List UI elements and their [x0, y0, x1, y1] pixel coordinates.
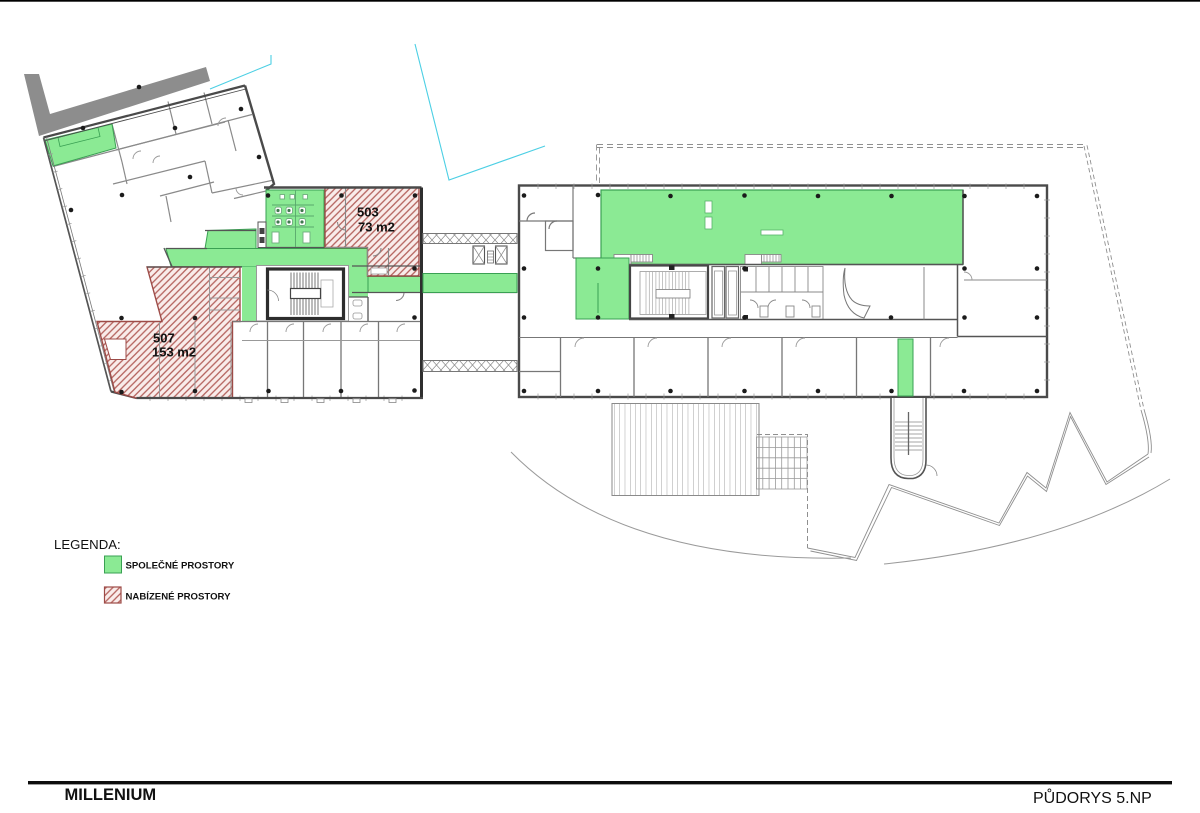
svg-text:NABÍZENÉ PROSTORY: NABÍZENÉ PROSTORY: [126, 591, 232, 603]
svg-text:507: 507: [153, 331, 175, 346]
svg-text:MILLENIUM: MILLENIUM: [65, 786, 157, 804]
svg-text:LEGENDA:: LEGENDA:: [54, 537, 121, 552]
svg-text:73 m2: 73 m2: [358, 220, 395, 235]
svg-text:503: 503: [357, 205, 379, 220]
svg-text:SPOLEČNÉ PROSTORY: SPOLEČNÉ PROSTORY: [126, 560, 235, 572]
svg-text:PŮDORYS 5.NP: PŮDORYS 5.NP: [1033, 788, 1152, 807]
svg-text:153 m2: 153 m2: [152, 345, 196, 360]
